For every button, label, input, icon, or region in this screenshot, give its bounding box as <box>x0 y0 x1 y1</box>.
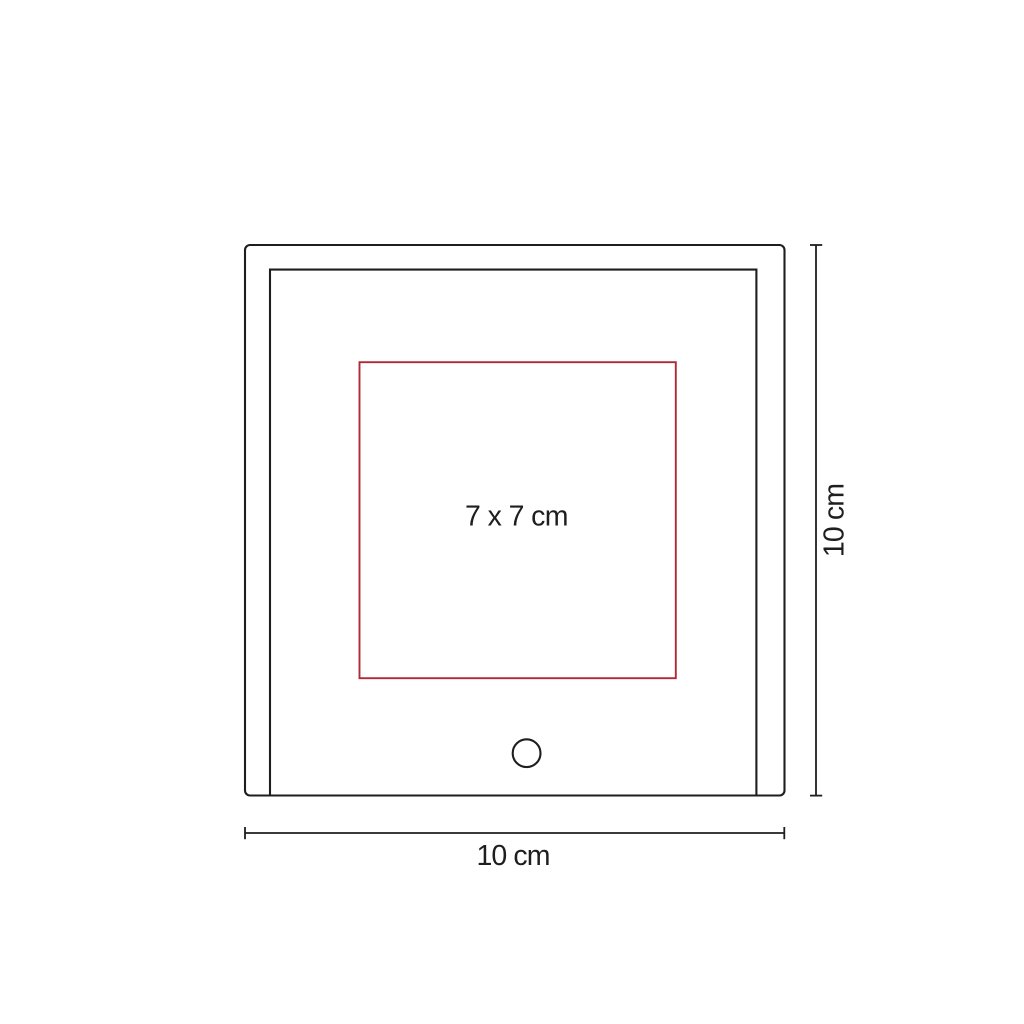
svg-text:10 cm: 10 cm <box>476 840 549 872</box>
svg-text:10 cm: 10 cm <box>819 484 851 557</box>
svg-text:7 x 7 cm: 7 x 7 cm <box>465 501 568 533</box>
